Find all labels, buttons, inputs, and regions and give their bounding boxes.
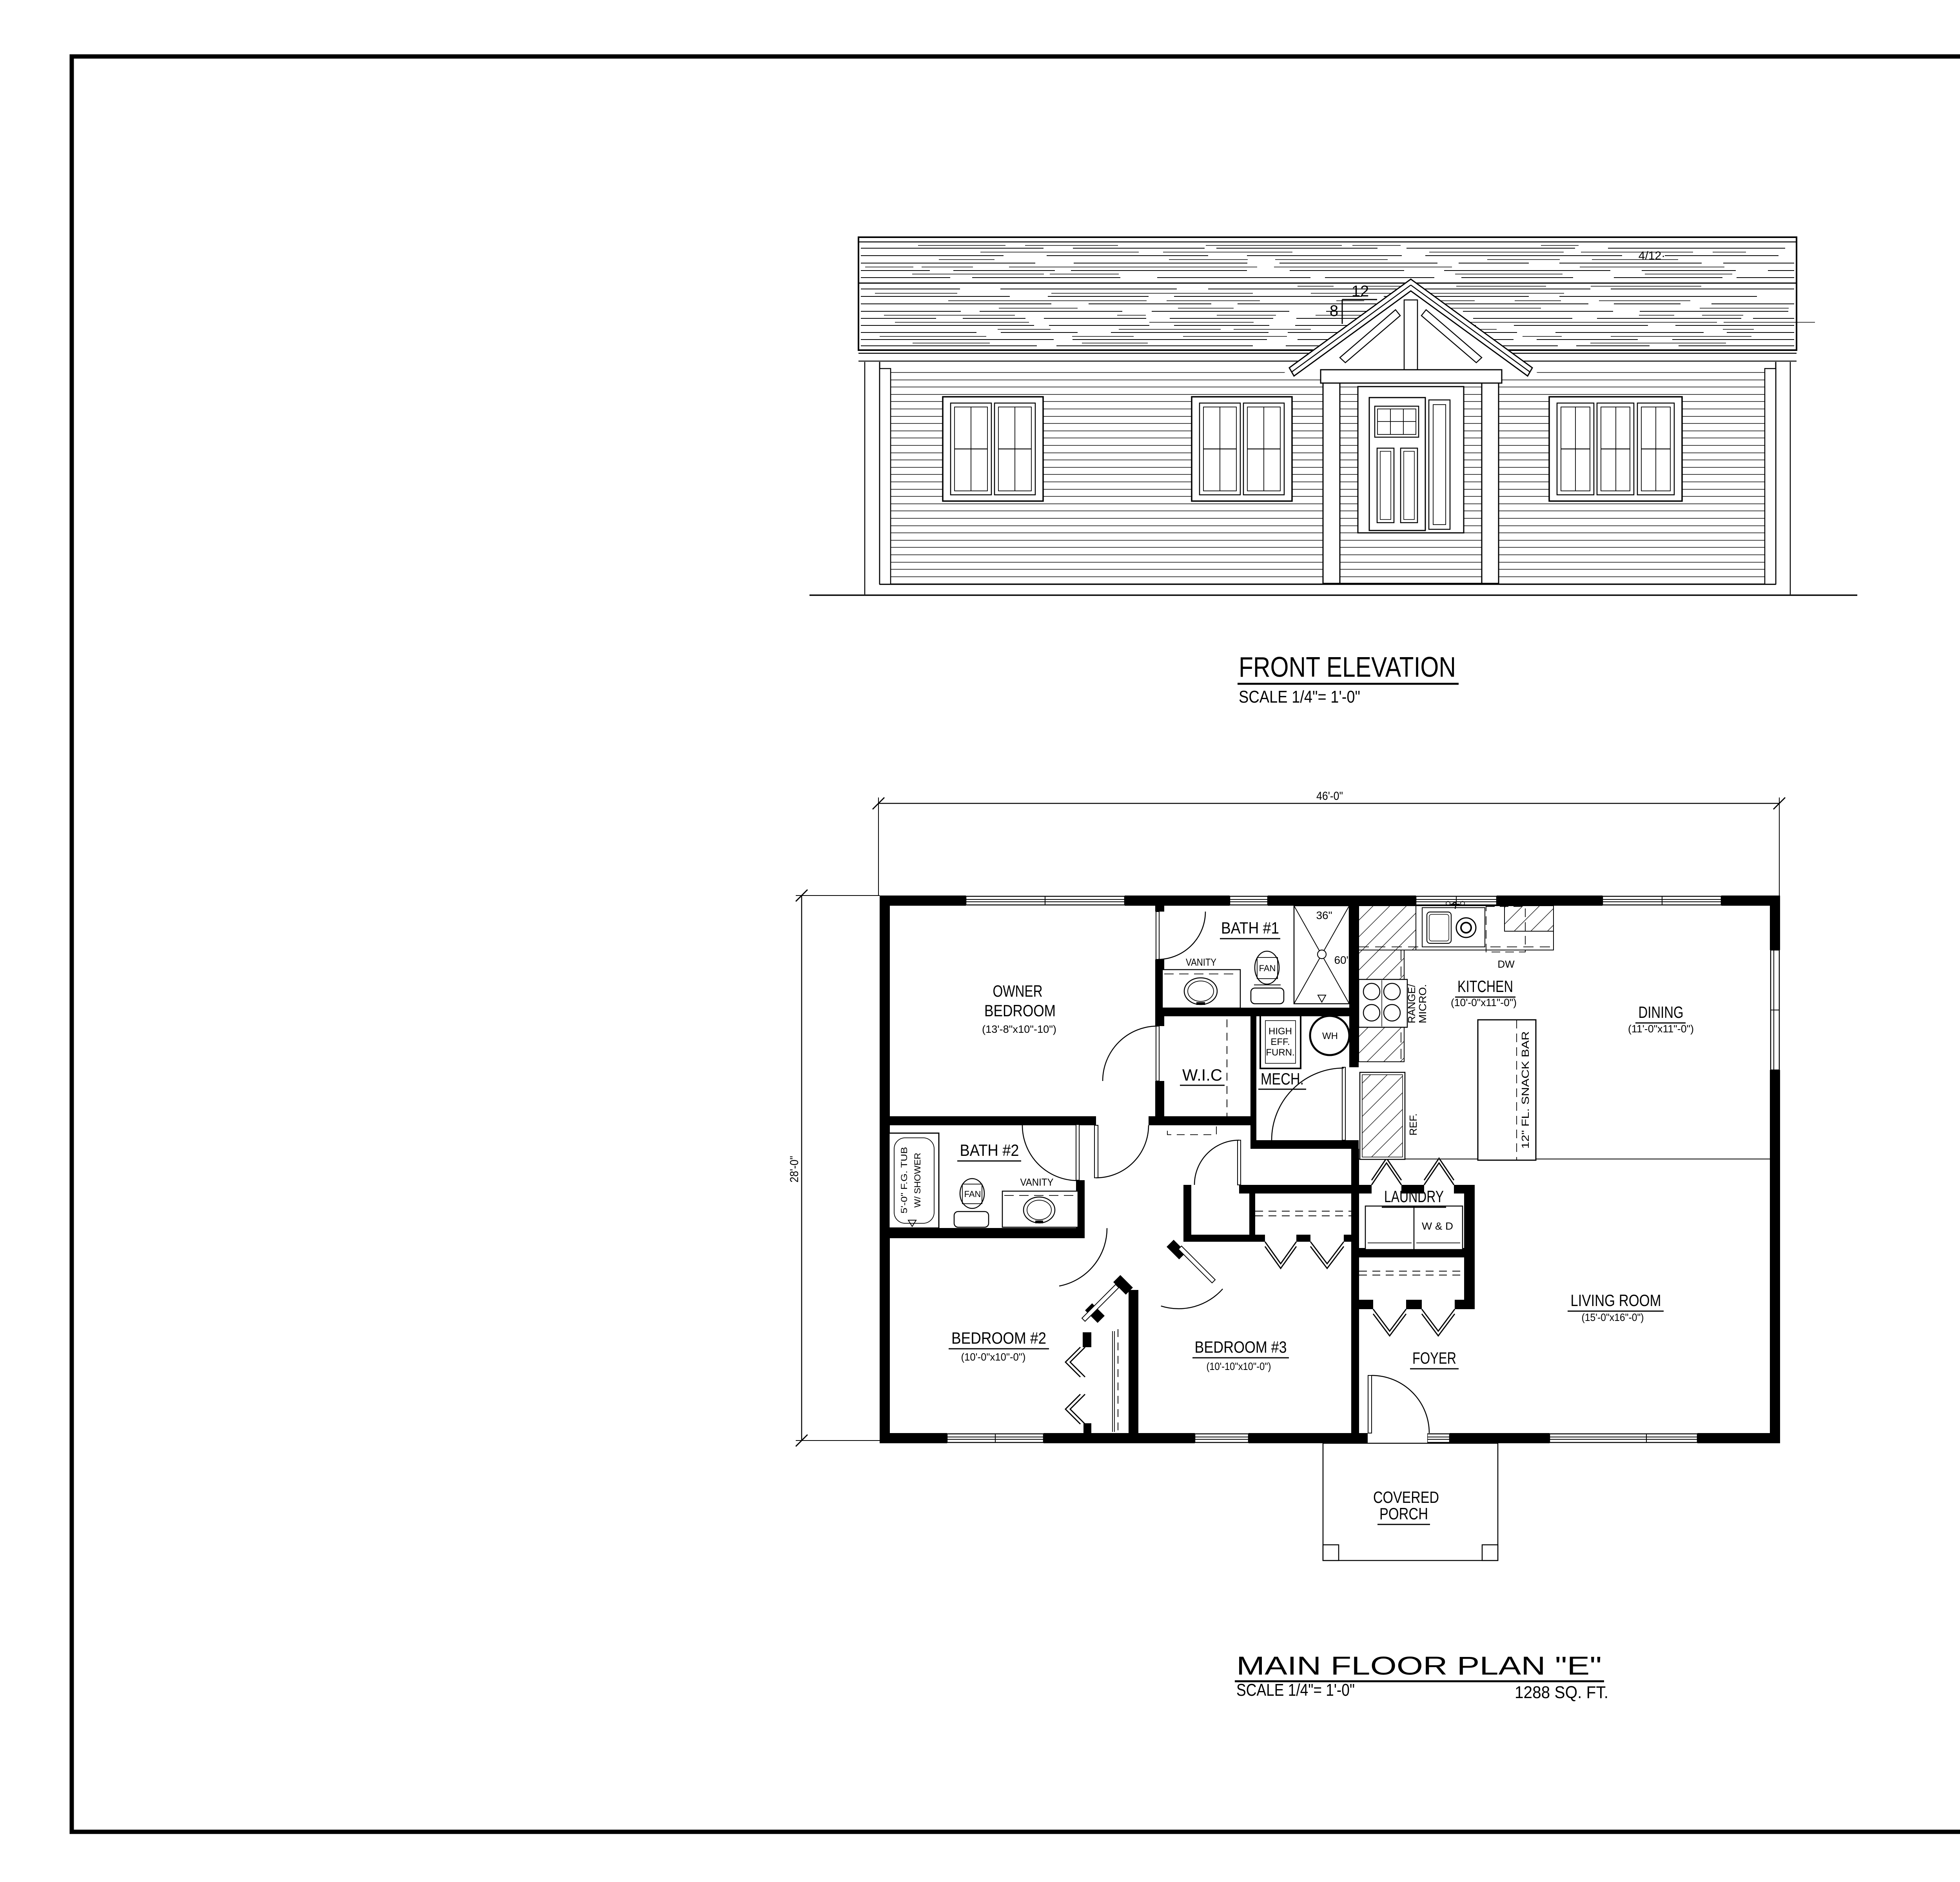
svg-text:FAN: FAN [1259, 963, 1276, 973]
svg-text:5'-0" F.G. TUB: 5'-0" F.G. TUB [899, 1147, 909, 1213]
svg-text:(15'-0"x16"-0"): (15'-0"x16"-0") [1582, 1312, 1644, 1323]
svg-text:BATH #1: BATH #1 [1221, 919, 1279, 937]
svg-text:HIGH: HIGH [1269, 1026, 1292, 1037]
svg-text:MICRO.: MICRO. [1417, 984, 1428, 1023]
svg-text:DW: DW [1497, 958, 1515, 970]
svg-text:(13'-8"x10"-10"): (13'-8"x10"-10") [982, 1023, 1056, 1035]
svg-text:BATH #2: BATH #2 [960, 1141, 1019, 1159]
svg-text:(11'-0"x11"-0"): (11'-0"x11"-0") [1628, 1023, 1694, 1035]
svg-text:8: 8 [1330, 302, 1338, 320]
svg-text:EFF.: EFF. [1270, 1037, 1290, 1047]
svg-text:MECH.: MECH. [1261, 1070, 1304, 1088]
svg-text:FOYER: FOYER [1412, 1349, 1456, 1367]
svg-text:VANITY: VANITY [1020, 1176, 1054, 1188]
svg-text:BEDROOM #3: BEDROOM #3 [1195, 1338, 1287, 1356]
svg-text:(10'-0"x10"-0"): (10'-0"x10"-0") [961, 1351, 1026, 1363]
svg-text:COVERED: COVERED [1373, 1488, 1439, 1506]
svg-text:FURN.: FURN. [1266, 1047, 1294, 1058]
svg-text:W & D: W & D [1422, 1220, 1453, 1232]
svg-text:DINING: DINING [1639, 1003, 1684, 1021]
svg-text:VANITY: VANITY [1186, 956, 1216, 968]
svg-text:FRONT ELEVATION: FRONT ELEVATION [1239, 652, 1456, 683]
svg-text:SCALE 1/4"= 1'-0": SCALE 1/4"= 1'-0" [1239, 687, 1360, 707]
svg-text:FAN: FAN [964, 1189, 981, 1199]
svg-text:12: 12 [1352, 283, 1369, 300]
svg-text:W.I.C: W.I.C [1182, 1066, 1222, 1084]
svg-text:OWNER: OWNER [993, 982, 1043, 1000]
svg-text:LIVING ROOM: LIVING ROOM [1571, 1291, 1661, 1310]
svg-text:RANGE/: RANGE/ [1406, 984, 1417, 1023]
svg-text:(10'-10"x10"-0"): (10'-10"x10"-0") [1207, 1361, 1271, 1372]
svg-text:PORCH: PORCH [1379, 1504, 1428, 1523]
svg-text:KITCHEN: KITCHEN [1457, 977, 1513, 995]
svg-text:1288 SQ. FT.: 1288 SQ. FT. [1515, 1683, 1608, 1702]
svg-text:BEDROOM #2: BEDROOM #2 [951, 1329, 1046, 1347]
svg-text:MAIN FLOOR PLAN "E": MAIN FLOOR PLAN "E" [1236, 1651, 1602, 1680]
svg-text:28'-0": 28'-0" [788, 1156, 801, 1183]
svg-text:WH: WH [1322, 1031, 1338, 1041]
svg-text:4/12·: 4/12· [1639, 249, 1665, 262]
svg-text:W/ SHOWER: W/ SHOWER [913, 1153, 922, 1208]
svg-text:36": 36" [1316, 909, 1332, 921]
svg-text:SCALE 1/4"= 1'-0": SCALE 1/4"= 1'-0" [1236, 1680, 1355, 1700]
svg-text:REF.: REF. [1407, 1114, 1419, 1135]
svg-text:LAUNDRY: LAUNDRY [1384, 1187, 1444, 1206]
svg-text:46'-0": 46'-0" [1316, 790, 1343, 803]
svg-text:12" FL. SNACK BAR: 12" FL. SNACK BAR [1519, 1031, 1531, 1149]
svg-text:BEDROOM: BEDROOM [984, 1001, 1056, 1020]
svg-text:60": 60" [1334, 954, 1350, 966]
svg-text:(10'-0"x11"-0"): (10'-0"x11"-0") [1451, 997, 1517, 1008]
